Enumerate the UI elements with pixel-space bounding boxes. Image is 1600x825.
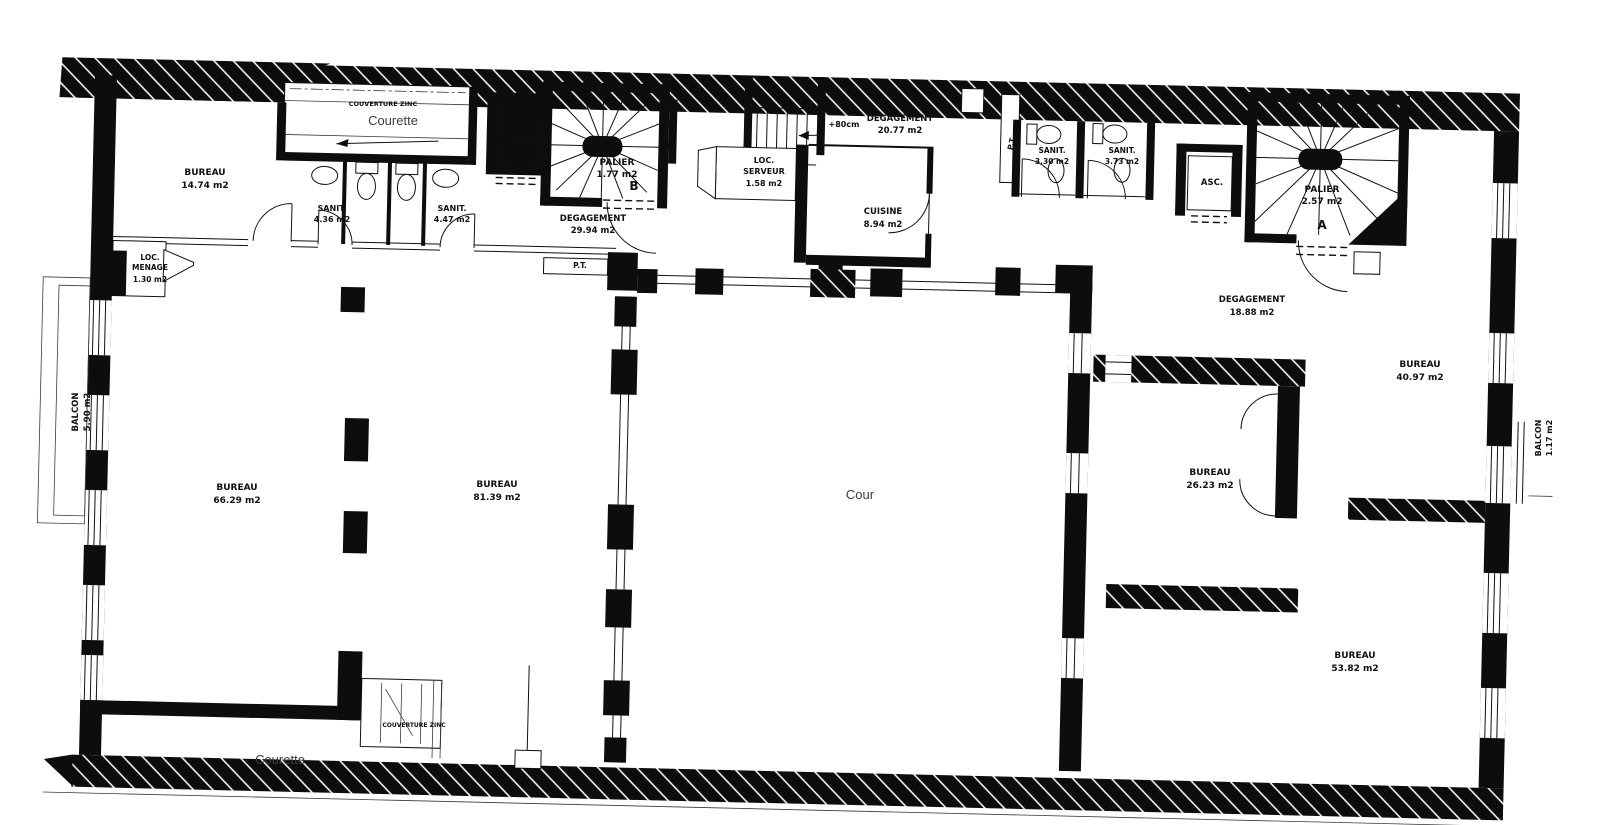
- room-label-degagement-top: DEGAGEMENT20.77 m2: [867, 114, 934, 136]
- room-label-sanit-4: SANIT.3.73 m2: [1105, 146, 1139, 166]
- window: [1482, 573, 1508, 634]
- floor-plan-svg: COUVERTURE ZINC Courette BUREAU14.74 m2 …: [0, 0, 1600, 825]
- column: [344, 418, 369, 462]
- label-pt-center: P.T.: [573, 261, 587, 270]
- label-couverture-top: COUVERTURE ZINC: [349, 100, 418, 108]
- room-label-bureau-e: BUREAU26.23 m2: [1186, 468, 1233, 491]
- label-courette-bottom: Courette: [255, 752, 305, 767]
- room-label-sanit-3: SANIT.3.30 m2: [1035, 146, 1069, 166]
- toilet-icon: [397, 174, 416, 200]
- toilet-tank: [356, 162, 378, 174]
- room-label-cuisine: CUISINE8.94 m2: [864, 207, 903, 230]
- sink-icon: [432, 169, 458, 188]
- duct-box: [1354, 252, 1381, 275]
- post: [527, 665, 529, 750]
- room-label-bureau-ne: BUREAU40.97 m2: [1396, 360, 1443, 383]
- column: [343, 511, 368, 554]
- label-stair-b: B: [629, 179, 638, 193]
- room-label-balcon-left: BALCON5.90 m2: [71, 392, 93, 431]
- stair-b-core: [582, 136, 622, 158]
- label-stair-height: +80cm: [829, 120, 860, 129]
- room-label-balcon-right: BALCON1.17 m2: [1534, 420, 1554, 457]
- columns: [335, 287, 373, 554]
- cour-walls: [602, 254, 1093, 773]
- window: [1488, 333, 1514, 384]
- door-arc: [1241, 393, 1278, 430]
- room-label-bureau-w: BUREAU66.29 m2: [213, 483, 260, 506]
- room-label-palier-a: PALIER2.57 m2: [1302, 185, 1343, 207]
- window: [1068, 333, 1091, 374]
- label-courette-top: Courette: [368, 113, 418, 128]
- window: [1061, 638, 1084, 679]
- toilet-tank: [396, 163, 418, 175]
- label-asc-right: ASC.: [1201, 178, 1223, 188]
- window: [1065, 453, 1088, 494]
- window: [82, 585, 105, 641]
- elevator-left: [486, 92, 548, 184]
- plan-labels: COUVERTURE ZINC Courette BUREAU14.74 m2 …: [71, 100, 1554, 767]
- window: [80, 655, 103, 701]
- courette-bottom-area: [79, 645, 544, 769]
- post-base: [515, 750, 541, 769]
- room-label-degagement-e: DEGAGEMENT18.88 m2: [1219, 295, 1286, 318]
- toilet-tank: [1027, 124, 1037, 144]
- window: [84, 490, 107, 546]
- stair-a-core: [1298, 148, 1342, 170]
- label-cour: Cour: [846, 487, 875, 502]
- stair-a-chamfer: [1348, 198, 1407, 246]
- stair-a: [1225, 65, 1414, 293]
- room-label-palier-b: PALIER1.77 m2: [597, 158, 638, 180]
- label-stair-a: A: [1317, 218, 1327, 232]
- door-gap: [1105, 355, 1132, 383]
- east-wing-walls: [1088, 355, 1489, 617]
- sink-icon: [311, 166, 337, 185]
- duct-box: [961, 88, 984, 113]
- plan-geometry: [31, 37, 1562, 825]
- room-label-bureau-nw: BUREAU14.74 m2: [181, 168, 228, 191]
- door-arc: [253, 203, 292, 242]
- window: [1485, 446, 1511, 504]
- toilet-icon: [1103, 125, 1127, 144]
- floor-plan-canvas: COUVERTURE ZINC Courette BUREAU14.74 m2 …: [0, 0, 1600, 825]
- arrow-head: [799, 131, 809, 140]
- room-label-sanit-2: SANIT.4.47 m2: [434, 204, 470, 224]
- sanitaires-left: [310, 157, 459, 246]
- room-label-bureau-se: BUREAU53.82 m2: [1331, 651, 1378, 674]
- label-couverture-bottom: COUVERTURE ZINC: [382, 722, 446, 729]
- column: [340, 287, 365, 313]
- toilet-icon: [357, 173, 376, 199]
- toilet-tank: [1093, 124, 1103, 144]
- toilet-icon: [1037, 125, 1061, 144]
- window: [1480, 688, 1506, 739]
- bottom-left-corner: [43, 754, 74, 787]
- door-arc: [1239, 479, 1276, 516]
- room-label-bureau-c: BUREAU81.39 m2: [473, 480, 520, 503]
- window: [88, 300, 111, 356]
- window: [1492, 183, 1518, 239]
- label-asc-left: Asc.: [518, 134, 538, 144]
